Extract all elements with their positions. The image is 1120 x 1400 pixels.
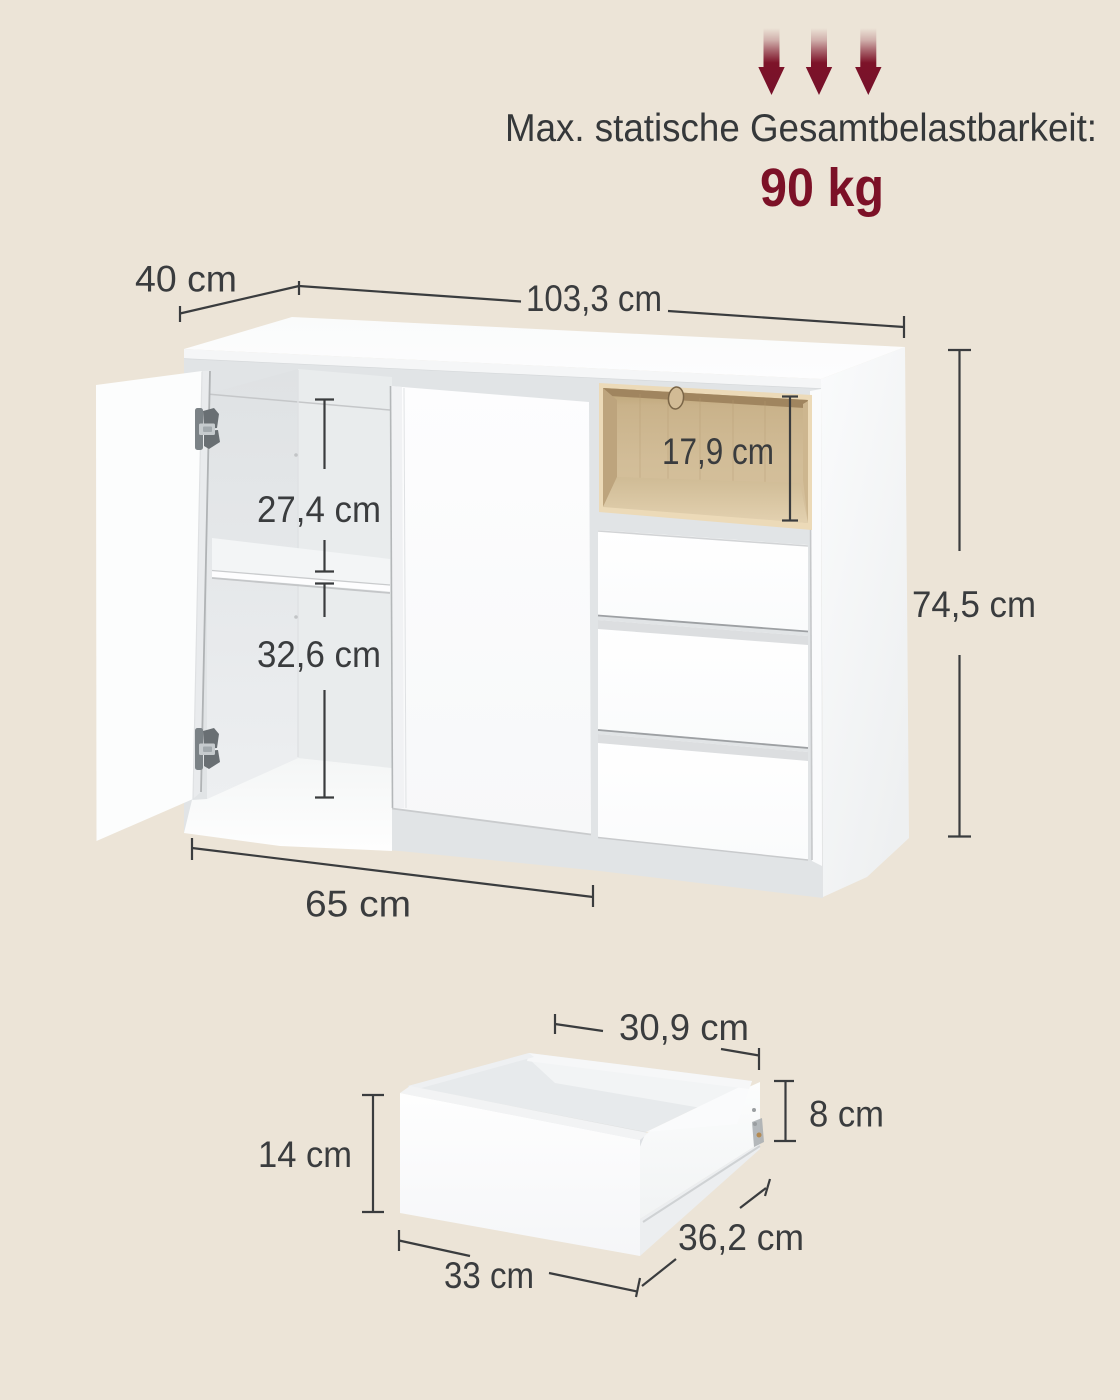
- svg-text:Max. statische Gesamtbelastbar: Max. statische Gesamtbelastbarkeit:: [505, 107, 1097, 150]
- svg-text:40 cm: 40 cm: [135, 259, 237, 300]
- svg-text:32,6 cm: 32,6 cm: [257, 634, 381, 675]
- svg-text:65 cm: 65 cm: [305, 884, 411, 925]
- svg-text:17,9 cm: 17,9 cm: [662, 431, 774, 472]
- svg-text:30,9 cm: 30,9 cm: [619, 1007, 749, 1048]
- svg-text:103,3 cm: 103,3 cm: [526, 278, 662, 319]
- svg-text:33 cm: 33 cm: [444, 1255, 534, 1296]
- svg-text:90 kg: 90 kg: [760, 158, 884, 218]
- svg-text:8 cm: 8 cm: [809, 1094, 884, 1135]
- svg-text:74,5 cm: 74,5 cm: [912, 584, 1036, 625]
- svg-text:36,2 cm: 36,2 cm: [678, 1217, 804, 1258]
- svg-text:14 cm: 14 cm: [258, 1134, 352, 1175]
- svg-text:27,4 cm: 27,4 cm: [257, 489, 381, 530]
